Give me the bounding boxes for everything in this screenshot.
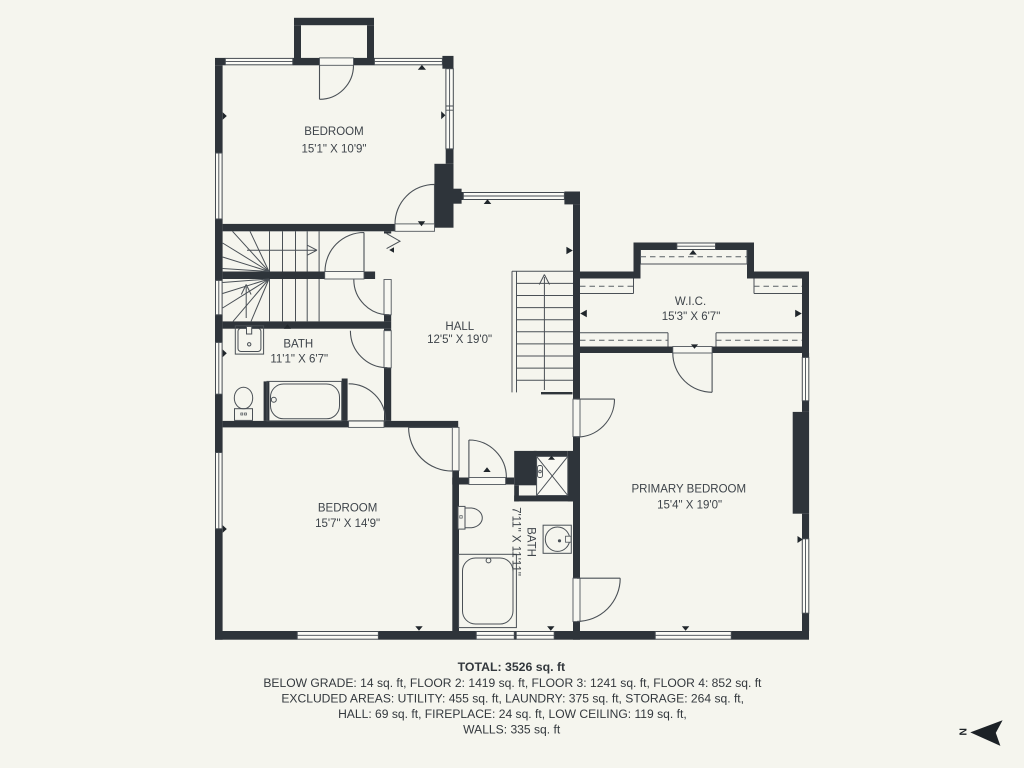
- svg-text:12'5" X 19'0": 12'5" X 19'0": [427, 334, 492, 346]
- svg-text:7'11" X 11'11": 7'11" X 11'11": [510, 507, 522, 576]
- svg-text:15'7" X 14'9": 15'7" X 14'9": [315, 518, 380, 530]
- svg-text:W.I.C.: W.I.C.: [675, 296, 706, 308]
- svg-text:TOTAL: 3526 sq. ft: TOTAL: 3526 sq. ft: [458, 660, 566, 674]
- svg-text:HALL: 69 sq. ft, FIREPLACE: 24: HALL: 69 sq. ft, FIREPLACE: 24 sq. ft, L…: [338, 707, 687, 721]
- svg-text:N: N: [957, 728, 969, 736]
- svg-text:PRIMARY BEDROOM: PRIMARY BEDROOM: [631, 484, 746, 496]
- svg-text:15'1" X 10'9": 15'1" X 10'9": [302, 144, 367, 156]
- svg-text:BEDROOM: BEDROOM: [318, 503, 377, 515]
- svg-text:EXCLUDED AREAS: UTILITY: 455 s: EXCLUDED AREAS: UTILITY: 455 sq. ft, LAU…: [281, 692, 744, 706]
- svg-text:WALLS: 335 sq. ft: WALLS: 335 sq. ft: [463, 723, 561, 737]
- svg-text:BEDROOM: BEDROOM: [304, 126, 363, 138]
- svg-text:11'1" X 6'7": 11'1" X 6'7": [270, 354, 328, 366]
- svg-text:15'4" X 19'0": 15'4" X 19'0": [657, 500, 722, 512]
- svg-text:BATH: BATH: [525, 527, 537, 557]
- svg-text:15'3" X 6'7": 15'3" X 6'7": [662, 311, 721, 323]
- svg-text:BELOW GRADE: 14 sq. ft, FLOOR: BELOW GRADE: 14 sq. ft, FLOOR 2: 1419 sq…: [263, 676, 762, 690]
- svg-text:BATH: BATH: [283, 339, 313, 351]
- svg-text:HALL: HALL: [445, 321, 474, 333]
